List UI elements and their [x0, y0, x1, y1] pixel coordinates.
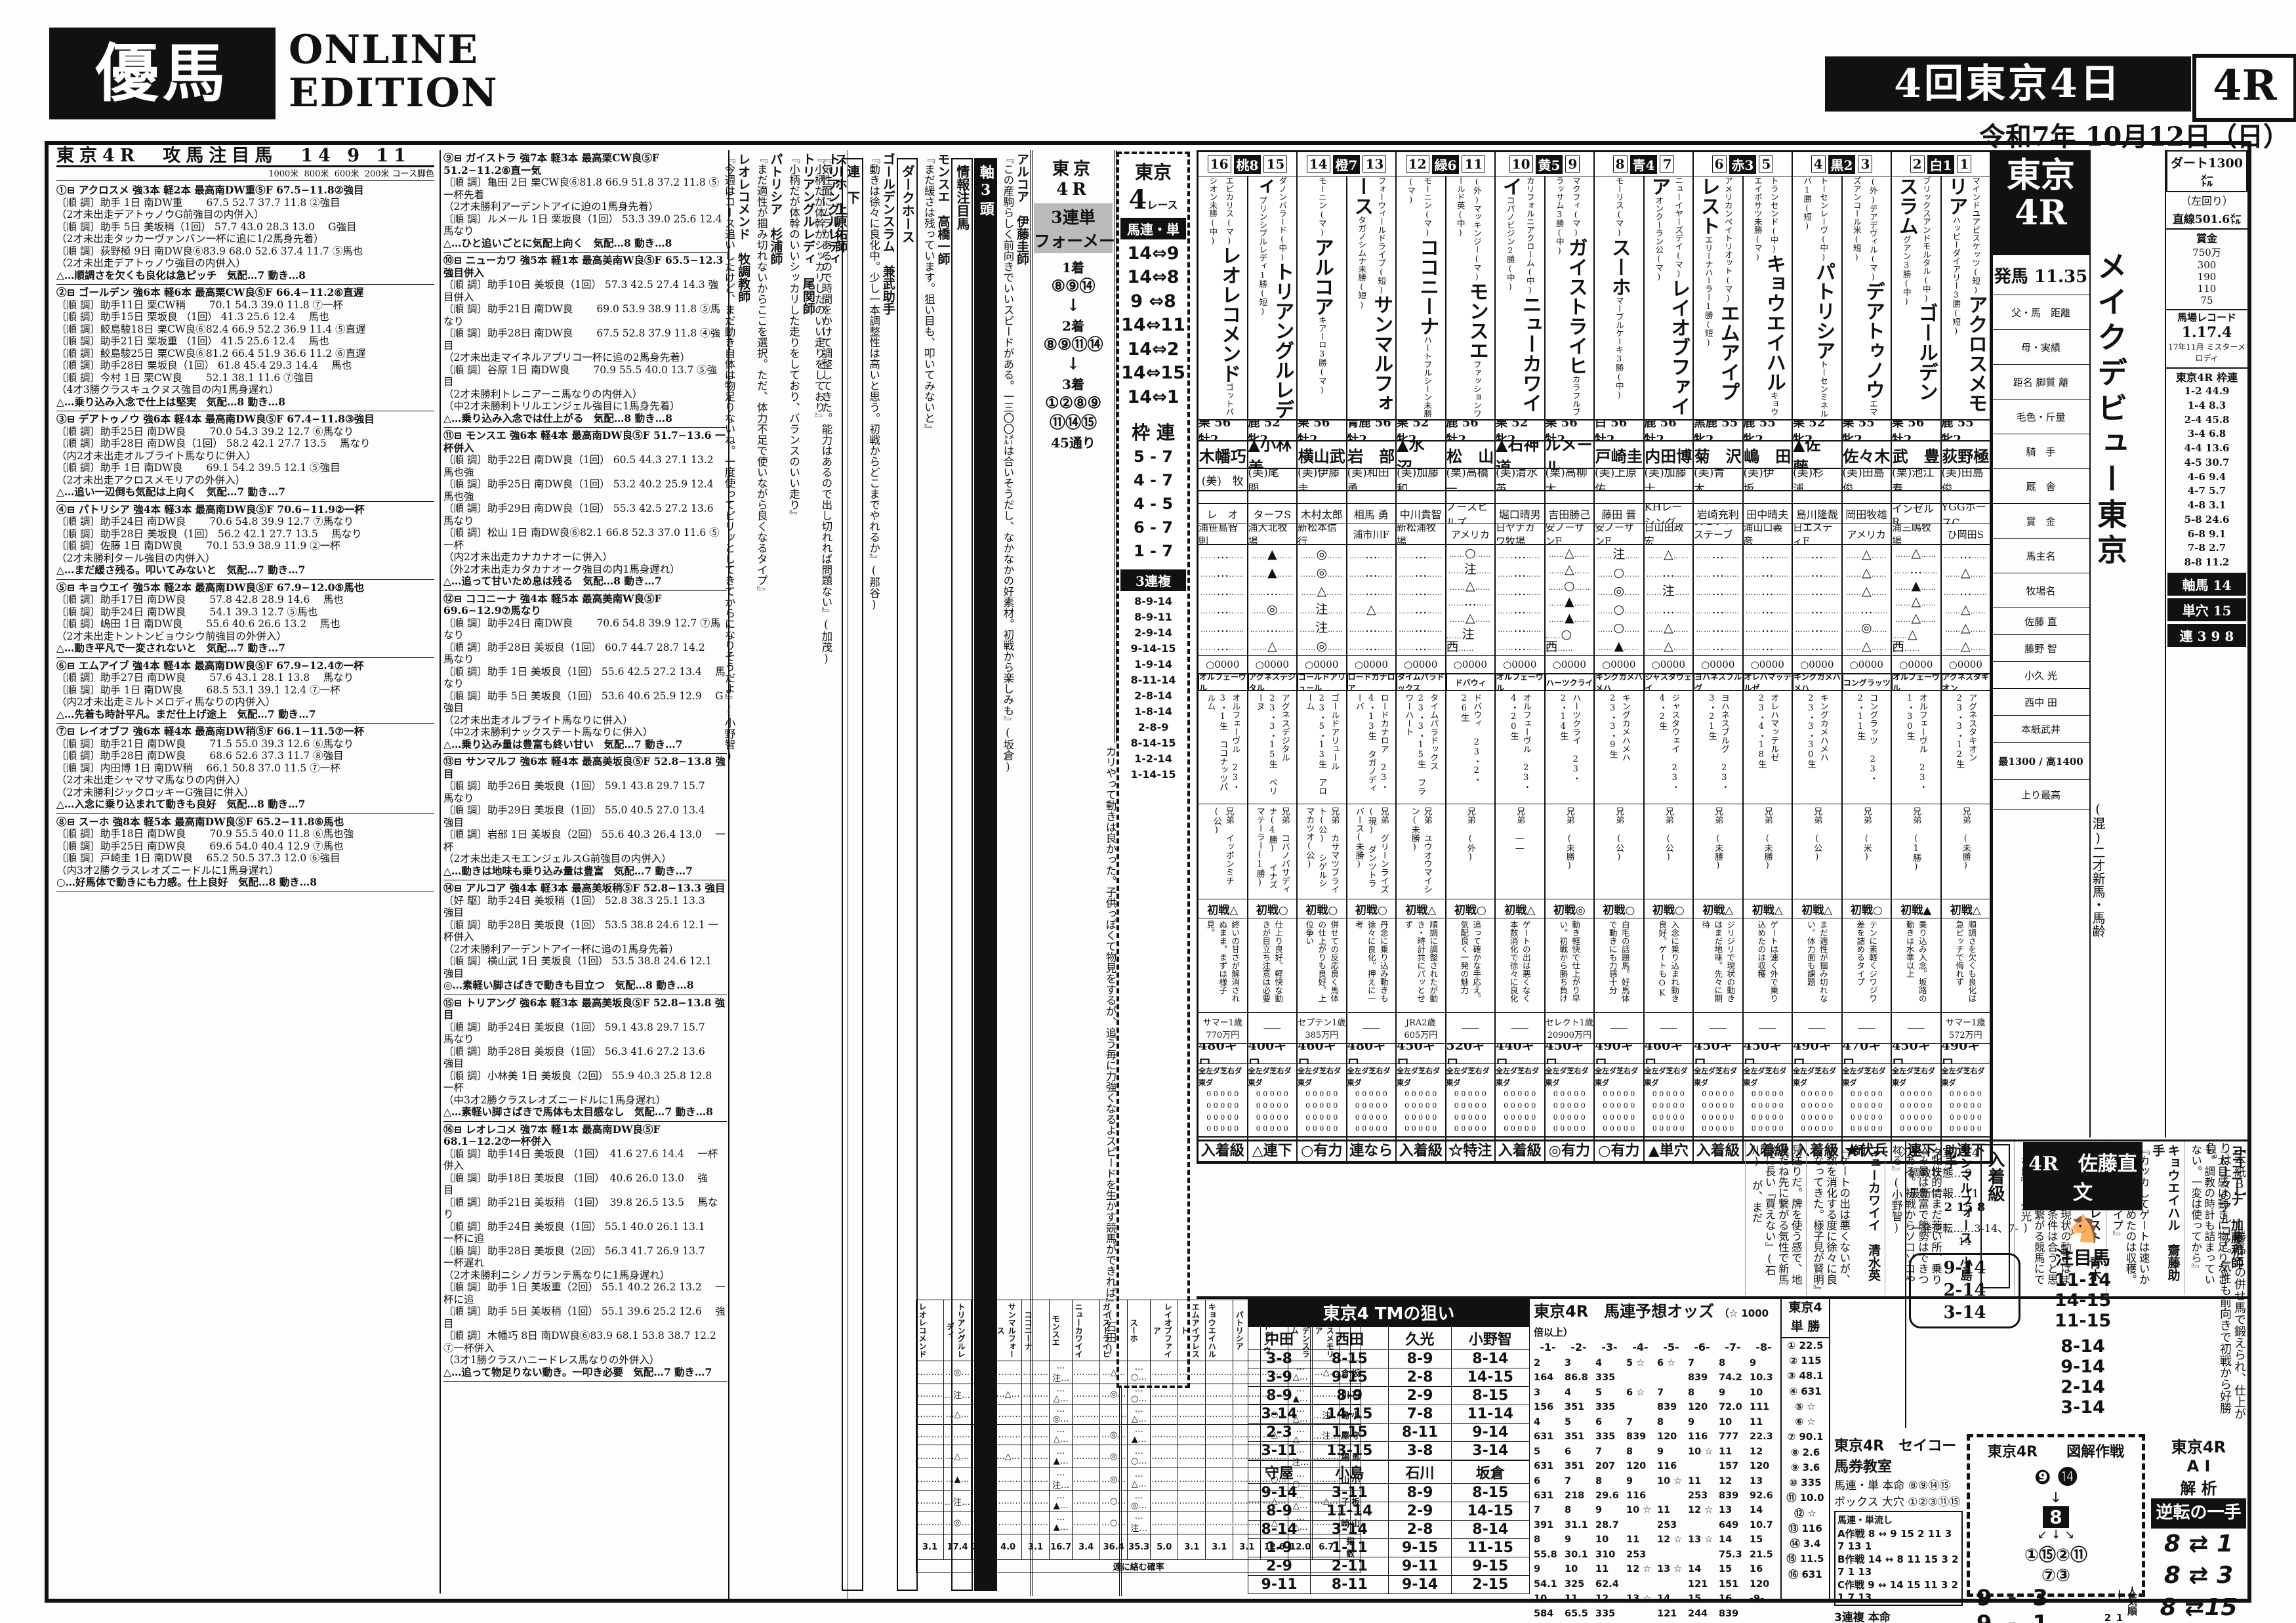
- frame-color-label: 白1: [1927, 155, 1955, 174]
- odds-cell: 6 631: [1534, 1474, 1562, 1504]
- frame-header: 10黄59: [1496, 152, 1595, 176]
- odds-col-header: -8-: [1750, 1340, 1778, 1356]
- mark-row: ……◎……: [1300, 640, 1343, 653]
- horse-name-cell: エピカリス(マ)レオレコメンドゴットパシオン未勝(中): [1199, 176, 1248, 421]
- tm-pick: 2-9: [1248, 1557, 1311, 1576]
- dots: ……: [1399, 625, 1414, 634]
- stable-name: (栗)高柳大: [1546, 469, 1595, 491]
- horse-name-cell: ニューイヤーズデイ(マ)レイオブファイアオンクーラン公(マ): [1645, 176, 1694, 421]
- odds-cell: 4 351: [1565, 1386, 1593, 1415]
- marks-horse-name-text: パトリシア: [1234, 1302, 1245, 1359]
- dots: ……: [1944, 588, 1959, 597]
- dam-name: キアーロ3勝(マ): [1317, 316, 1327, 395]
- mark: △: [1911, 546, 1921, 560]
- blank-cell: [1744, 491, 1794, 504]
- yuma-logo: 優馬: [49, 28, 276, 119]
- tm-header-row: 中田西田久光小野智: [1248, 1327, 1530, 1350]
- mark-row: ……△……: [1252, 640, 1293, 653]
- training-block-head: ⑤⊟ キョウエイ 強5本 軽2本 最高南DW良⑤F 67.9−12.0⑤馬也: [56, 582, 434, 594]
- mark-row: ……………: [1746, 548, 1790, 561]
- training-note: △…乗り込み入念では仕上がる 気配…8 動き…8: [443, 413, 727, 425]
- mark-row: ……△……: [1648, 640, 1689, 653]
- odds-cell: 10 325: [1565, 1562, 1593, 1592]
- training-block-head: ④⊟ パトリシア 強4本 軽3本 最高南DW良⑤F 70.6−11.9②一杯: [56, 504, 434, 516]
- mark-row: ……………: [1498, 640, 1542, 653]
- record-grid: 全左ダ芝右ダ東ダ0 0 0 0 00 0 0 0 00 0 0 0 00 0 0…: [1298, 1064, 1347, 1138]
- sibling-cell: 兄弟 ――: [1496, 804, 1546, 899]
- race-record: ○0000: [1595, 656, 1645, 674]
- dam-name: タガノシムナ未勝(短): [1357, 216, 1366, 310]
- dots: ……: [1575, 583, 1591, 592]
- dots: ……: [1477, 599, 1492, 607]
- dots: ……: [1574, 567, 1590, 575]
- marks-horse-name: キョウエイハル: [1206, 1300, 1233, 1361]
- horse-name: ココニーナ: [1416, 237, 1439, 336]
- tansho-odds-row: ⑤ ☆: [1782, 1399, 1829, 1414]
- nagashi-row: C作戦 9 ↔ 14 15 11 3 2 1 7 13: [1837, 1578, 1959, 1603]
- dam-name: ハッピーダイアリー3勝(短): [1951, 216, 1961, 336]
- training-block-head: ⑦⊟ レイオブフ 強6本 軽4本 最高南DW稍⑤F 66.1−11.5⑦一杯: [56, 726, 434, 738]
- damsire-name: オルフェーヴル: [1199, 674, 1248, 691]
- dots: ……: [1597, 607, 1613, 615]
- stable-comment-cell: 動き軽快で仕上がり早い。初戦から勝ち負け: [1546, 918, 1595, 1013]
- mark: ▲: [1614, 639, 1624, 653]
- sidebar-labels: 東京4R発馬 11.35父・馬 距離母・実績距名 脚質 離毛色・斤量騎 手厩 舎…: [1990, 150, 2091, 1138]
- mark-row: ……△……: [1648, 622, 1689, 634]
- dots: ……: [1795, 570, 1811, 579]
- record-grid-row: 0 0 0 0 0: [1801, 1088, 1833, 1100]
- index-value: 3.1: [916, 1534, 944, 1560]
- tm-pick: 9-14: [1389, 1576, 1451, 1594]
- dots: ……: [1895, 550, 1911, 559]
- index-value: 4.0: [994, 1534, 1022, 1560]
- comment-text: 『まだ適性が掴み切れないからここを選択。ただ、体力不足で使いながら良くなるタイプ…: [754, 153, 768, 1596]
- tm-pick-row: 3-1414-157-811-14: [1248, 1405, 1530, 1424]
- breeder-name: 浦三嶋牧場: [1892, 524, 1942, 545]
- band-segment: 見送りだ。牌を使う感で、地味だね先に繋がる気性で新馬戦に長い『買えない』(石川)…: [1745, 1141, 1807, 1295]
- training-line: （内2才未出走カナカナオーに併入）: [443, 551, 727, 564]
- mark-row: ……………: [1746, 622, 1790, 634]
- tansho-odds-row: ⑩ 335: [1782, 1475, 1829, 1490]
- dots: ……: [1378, 625, 1393, 634]
- training-line: 〔順 調〕助手 1日 美坂重（2回） 55.1 40.2 26.2 13.2 一…: [443, 1281, 727, 1305]
- breeder-name: 新松本信行: [1298, 524, 1347, 545]
- mark: …: [1513, 565, 1526, 580]
- mark: △: [1961, 565, 1971, 580]
- mark-row: ……………: [1250, 622, 1294, 634]
- mark-row: ……▲……: [1252, 548, 1293, 561]
- record-grid-head: 全左ダ芝右ダ東ダ: [1347, 1065, 1396, 1088]
- row-label: 賞 金: [1992, 504, 2089, 539]
- prize-row: 300: [2166, 259, 2247, 271]
- first-race-mark: 初戦○: [1298, 899, 1347, 918]
- training-line: （2才未勝利ジックロッキーG強目に併入）: [56, 787, 434, 799]
- horse-name: アルコア: [1311, 237, 1334, 316]
- dots: ……: [1349, 570, 1365, 579]
- place-1-horses: ⑧⑨⑭: [1033, 276, 1114, 296]
- marks-horse-name: ガイストライヒ: [1100, 1300, 1128, 1361]
- mark-cell: ………: [994, 1361, 1022, 1384]
- wakuren-odds-row: 7-8 2.7: [2166, 541, 2247, 556]
- odds-cell: 12 ☆: [1657, 1532, 1685, 1562]
- training-line: 〔順 調〕小林美 1日 美坂良（2回） 55.9 40.3 25.8 12.8 …: [443, 1070, 727, 1094]
- mark-cell: ………: [1178, 1491, 1206, 1511]
- jockey-name: 木幡巧: [1199, 442, 1248, 469]
- odds-cell: 7 207: [1595, 1445, 1624, 1474]
- sibling-cell: 兄弟 (公): [1645, 804, 1694, 899]
- dots: ……: [1944, 552, 1959, 560]
- owner-name: 島川隆哉: [1793, 504, 1843, 524]
- mark-row: ……◎……: [1300, 548, 1343, 561]
- training-block: ③⊟ デアトゥノウ 強6本 軽4本 最高南DW良⑤F 67.4−11.8③強目〔…: [56, 411, 434, 502]
- damsire-name: アグネスデジタル: [1248, 674, 1298, 691]
- dots: ……: [1696, 607, 1712, 615]
- dots: ……: [1229, 607, 1244, 615]
- frame-header: 16桃815: [1199, 152, 1298, 176]
- mark-cell: …◎…: [1100, 1384, 1128, 1405]
- dots: ……: [1648, 552, 1664, 560]
- first-race-mark: 初戦△: [1694, 899, 1744, 918]
- dots: ……: [1477, 567, 1492, 575]
- tm-title: 東京4 TMの狙い: [1248, 1298, 1530, 1326]
- prize-cell: ――: [1595, 1013, 1645, 1044]
- dots: ……: [1278, 607, 1294, 615]
- dots: ……: [1971, 607, 1986, 615]
- logo-edition: EDITION: [289, 72, 499, 114]
- mark-row: ……△……: [1450, 580, 1491, 592]
- mark-row: ……………: [1795, 640, 1839, 653]
- dots: ……: [1647, 607, 1662, 615]
- wakuren-odds-row: 4-4 13.6: [2166, 442, 2247, 456]
- prize-cell: ――: [1496, 1013, 1546, 1044]
- mark: …: [1761, 584, 1774, 598]
- jockey-name: 内田博: [1645, 442, 1694, 469]
- dots: ……: [1399, 588, 1414, 597]
- body-weight: 440キロ: [1496, 1044, 1546, 1064]
- owner-name: 吉田勝己: [1546, 504, 1595, 524]
- breeder-name: 新松浦牧場: [1397, 524, 1446, 545]
- mark: ○: [1613, 565, 1624, 580]
- race-id-box: 東京4R: [1992, 150, 2089, 255]
- mark: …: [1365, 565, 1378, 580]
- dots: ……: [1351, 607, 1366, 615]
- stable-comment-cell: 入念に乗り込まれ動き良好。ゲートもOK: [1645, 918, 1694, 1013]
- pedigree-cell: ゴールドアリュール 23・5・13生 アローム: [1298, 691, 1347, 804]
- comment-segment: ゴールデンスラム 兼武助手『動きは徐々に良化中。少し一本調整性は高いと思う。初戦…: [867, 153, 895, 1596]
- dots: ……: [1945, 625, 1961, 634]
- mark-cell: ………: [944, 1425, 972, 1445]
- mark: …: [1959, 547, 1972, 562]
- mark-cell: …▲…: [972, 1361, 994, 1384]
- mark-cell: ………: [1151, 1445, 1178, 1468]
- blank-cell: [1546, 491, 1595, 504]
- marks-horse-name-text: サンマルフォース: [995, 1302, 1017, 1359]
- dots: ……: [1300, 625, 1315, 634]
- tm-pick-row: 9-143-118-98-15: [1248, 1484, 1530, 1502]
- arrow-down-icon: ↓: [1033, 354, 1114, 374]
- dots: ……: [1795, 625, 1811, 634]
- record-grid: 全左ダ芝右ダ東ダ0 0 0 0 00 0 0 0 00 0 0 0 00 0 0…: [1546, 1064, 1595, 1138]
- dots: ……: [1229, 570, 1244, 579]
- stable-comment-cell: 順調に調整されたが動き・時計共にパッとせず: [1397, 918, 1446, 1013]
- comment-text: 『動きは徐々に良化中。少し一本調整性は高いと思う。初戦からどこまでやれるか』(那…: [867, 153, 880, 1596]
- mark-row: ……△……: [1549, 564, 1590, 576]
- dots: ……: [1624, 588, 1640, 597]
- tm-marks-cell: ………………………………………………………………………………: [1793, 545, 1843, 656]
- frame-header: 4黒23: [1793, 152, 1892, 176]
- record-grid-row: 0 0 0 0 0: [1305, 1112, 1338, 1124]
- pedigree-text: アグネスデジタル 23・3・15生 ペリーヌ: [1254, 693, 1291, 798]
- mark-cell: ………: [1178, 1384, 1206, 1405]
- horse-name-wrap: カリフォルニアクローム(中)ニューカワイイコパノビジン2勝(中): [1500, 176, 1540, 419]
- stable-comment-cell: 順調さを欠くも良化は急ピッチで侮れず: [1942, 918, 1992, 1013]
- horse-name-cell: トランセンド(中)キョウエイハルキョウエイボサツ未勝(マ): [1744, 176, 1794, 421]
- mark: ○: [1564, 579, 1575, 593]
- sibling-text: 兄弟 (米): [1860, 807, 1873, 894]
- frame-color-label: 青4: [1630, 155, 1658, 174]
- odds-cell: 9 116: [1657, 1445, 1685, 1474]
- dots: ……: [1774, 625, 1790, 634]
- mark: …: [1712, 547, 1724, 562]
- tm-pick: 9-11: [1389, 1557, 1451, 1576]
- record-grid-row: 0 0 0 0 0: [1603, 1112, 1635, 1124]
- record-grid: 全左ダ芝右ダ東ダ0 0 0 0 00 0 0 0 00 0 0 0 00 0 0…: [1942, 1064, 1992, 1138]
- training-line: 〔順 調〕助手28日 美坂良（1回） 53.5 38.8 24.6 12.1 一…: [443, 919, 727, 943]
- record-grid-row: 0 0 0 0 0: [1900, 1123, 1932, 1135]
- wakuren-odds-row: 4-8 3.1: [2166, 499, 2247, 513]
- training-block-head: ③⊟ デアトゥノウ 強6本 軽4本 最高南DW良⑤F 67.4−11.8③強目: [56, 413, 434, 426]
- index-value: 36.4: [1100, 1534, 1128, 1560]
- prize-row: 190: [2166, 271, 2247, 283]
- damsire-name: オルフェーヴル: [1892, 674, 1942, 691]
- race-condition: (混)二才新馬・馬齢: [2089, 659, 2108, 1079]
- mark-row: ……………: [1498, 585, 1542, 598]
- stable-name: (美) 牧: [1199, 469, 1248, 491]
- dots: ……: [1624, 644, 1639, 652]
- record-header: 馬場レコード: [2166, 309, 2247, 324]
- damsire-name: ドバウィ: [1446, 674, 1496, 691]
- ai-title1: 東京4R: [2151, 1434, 2246, 1457]
- blank-cell: [1645, 491, 1694, 504]
- dots: ……: [1846, 588, 1862, 597]
- tm-pick: 11-15: [1451, 1539, 1529, 1557]
- prize-header: 賞金: [2166, 230, 2247, 245]
- pedigree-text: オルフェーヴル 23・3・1生 ココナッツパルム: [1204, 693, 1241, 798]
- mark-cell: ………: [1073, 1445, 1100, 1468]
- mark-cell: ………: [1151, 1468, 1178, 1491]
- pedigree-text: オルフェーヴル 23・4・20生: [1507, 693, 1532, 798]
- dots: ……: [1675, 588, 1691, 597]
- chumoku-label: 注目馬: [2020, 1244, 2145, 1270]
- coat-weight-sex: 栗 55 牝2: [1843, 421, 1893, 442]
- mark-cell: ………: [1022, 1468, 1050, 1491]
- odds-cell: 10 777: [1719, 1415, 1747, 1445]
- mark-cell: …▲…: [1050, 1445, 1073, 1468]
- mark-row: ……………: [1696, 640, 1740, 653]
- logo-online: ONLINE: [289, 29, 479, 71]
- horse-name: レオレコメンド: [1218, 245, 1240, 383]
- mark-cell: ………: [1151, 1384, 1178, 1405]
- umaren-odds-matrix: 東京4R 馬連予想オッズ （☆ 1000倍以上）-1--2--3--4--5--…: [1534, 1298, 1778, 1599]
- tm-marks-cell: ……△…………△…………○…………▲…………▲…………○西……: [1546, 545, 1595, 656]
- training-line: 〔順 調〕助手28日 美坂良（2回） 56.3 41.7 26.9 13.7 一…: [443, 1245, 727, 1269]
- training-line: （2才未出走マイネルアプリコ一杯に追の2馬身先着）: [443, 352, 727, 364]
- dots: ……: [1598, 644, 1614, 652]
- mark-row: ……○……: [1597, 567, 1640, 579]
- stable-name: (美)清水英: [1496, 469, 1546, 491]
- index-value: 3.1: [1206, 1534, 1233, 1560]
- record-grid-head: 全左ダ芝右ダ東ダ: [1248, 1065, 1297, 1088]
- training-line: 〔順 調〕助手 5日 美坂稍（1回） 55.1 39.6 25.2 12.6 強…: [443, 1305, 727, 1330]
- race-record: ○0000: [1347, 656, 1397, 674]
- pedigree-text: ヨハネスブルグ 23・3・21生: [1706, 693, 1731, 798]
- mark: …: [1712, 621, 1724, 635]
- ai-analysis-block: 東京4RA I解 析逆転の一手8 ⇄ 18 ⇄ 38 ⇄158 ⇄118 ⇄ 2…: [2151, 1434, 2246, 1597]
- dots: ……: [1696, 644, 1712, 652]
- training-line: 〔順 調〕助手28日 美坂良（1回） 56.3 41.6 27.2 13.6 強…: [443, 1046, 727, 1070]
- index-value: 16.7: [1050, 1534, 1073, 1560]
- place-2-horses: ⑧⑨⑪⑭: [1033, 335, 1114, 354]
- coat-weight-sex: 栗 56 牡2: [1892, 421, 1942, 442]
- record-grid-row: 0 0 0 0 0: [1603, 1123, 1635, 1135]
- tm-pick-row: 2-31-158-119-14: [1248, 1424, 1530, 1442]
- owner-name: インゼルR: [1892, 504, 1942, 524]
- horse-no-left: 14: [1307, 155, 1330, 173]
- tm-pick: 9-15: [1451, 1557, 1529, 1576]
- training-line: （内3才2勝クラスレオズニードルに1馬身遅れ）: [56, 865, 434, 877]
- horse-name-cell: マクフィ(マ)ガイストライヒカラフルブラッサム3勝(中): [1546, 176, 1595, 421]
- mark: ○: [1613, 602, 1624, 617]
- mark-row: ……………: [1696, 567, 1740, 579]
- odds-col-header: -7-: [1719, 1340, 1747, 1356]
- mark-row: ……………: [1894, 564, 1938, 576]
- mark-cell: ………: [1206, 1445, 1233, 1468]
- mark-cell: ………: [1206, 1425, 1233, 1445]
- record-grid-head: 全左ダ芝右ダ東ダ: [1892, 1065, 1940, 1088]
- mark-cell: …◎…: [1128, 1491, 1151, 1511]
- training-line: （中3才2勝クラスレオズニードルに1馬身遅れ）: [443, 1094, 727, 1107]
- body-weight: 450キロ: [1694, 1044, 1744, 1064]
- blank-cell: [1298, 491, 1347, 504]
- wakuren-odds-row: 4-5 30.7: [2166, 456, 2247, 470]
- owner-name: 木村太郎: [1298, 504, 1347, 524]
- training-line: （3才1勝クラスハニードレス馬なりの外併入）: [443, 1354, 727, 1366]
- dots: ……: [1300, 570, 1316, 579]
- mark: 注: [1315, 621, 1328, 635]
- mark: …: [1959, 584, 1972, 598]
- mark-cell: ………: [1151, 1425, 1178, 1445]
- stable-name: (美)尾 関: [1248, 469, 1298, 491]
- stable-comment: 仕上り良好。軽快な動きが目立ち注意は必要: [1260, 920, 1284, 1007]
- pedigree-cell: オレハマッテルゼ 23・4・18生: [1744, 691, 1794, 804]
- owner-name: KHレーシング: [1645, 504, 1694, 524]
- race-record: ○0000: [1496, 656, 1546, 674]
- wakuren-odds-row: 1-2 44.9: [2166, 384, 2247, 399]
- tm-pick-row: 2-92-119-119-15: [1248, 1557, 1530, 1576]
- prize-row: 750万: [2166, 245, 2247, 259]
- ai-pair: 8 ⇄15: [2151, 1592, 2246, 1623]
- zukai-pairs-wrap: 9 - 39 - 19 -159 - 29 -119 - 79 - 8人気順 8…: [1973, 1586, 2139, 1623]
- mark-cell: ………: [1206, 1491, 1233, 1511]
- sibling-cell: 兄弟 (公): [1793, 804, 1843, 899]
- coat-weight-sex: 栗 52 牝2: [1397, 421, 1446, 442]
- mark-cell: ………: [1151, 1511, 1178, 1534]
- index-value: 5.0: [1151, 1534, 1178, 1560]
- first-race-mark: 初戦○: [1347, 899, 1397, 918]
- horse-name-wrap: モーリス(マ)スーホマーブルケーキ3勝(中): [1609, 176, 1629, 419]
- sire-name: アメリカンペイトリオット(マ): [1723, 176, 1733, 303]
- training-line: （2才未勝利トレニアーニ馬なりの内併入）: [443, 388, 727, 401]
- pedigree-cell: ハーツクライ 23・2・14生: [1546, 691, 1595, 804]
- sanrenpuku-header: 3連複: [1120, 569, 1186, 591]
- rounded-picks-box: 9-142-143-14: [1909, 1253, 2020, 1328]
- record-grid-row: 0 0 0 0 0: [1801, 1100, 1833, 1112]
- jockey-name: 岩 部: [1347, 442, 1397, 469]
- dots: ……: [1872, 552, 1887, 560]
- breeder-name: 安ゼットステーブル: [1694, 524, 1744, 545]
- seiko-baken-block: 東京4R セイコー馬券教室馬連・単 本命 ⑧⑨⑭⑮ボックス 大穴 ①②③⑪⑮馬連…: [1834, 1434, 1963, 1598]
- training-line: 〔順 調〕助手28日 南DW良（1回） 58.2 42.1 27.7 13.5 …: [56, 438, 434, 450]
- tm-pick: 1-11: [1311, 1539, 1389, 1557]
- record-grid-row: 0 0 0 0 0: [1752, 1088, 1784, 1100]
- training-line: 〔順 調〕今村 1日 栗CW良 52.1 38.1 11.6 ⑦強目: [56, 372, 434, 384]
- marks-horse-name-text: ココニーナ: [1023, 1302, 1034, 1359]
- owner-name: ノースヒルズ: [1446, 504, 1496, 524]
- stable-comment-cell: 終いの甘さが解消されぬまま。まずは様子見。: [1199, 918, 1248, 1013]
- odds-cell: 10 ☆: [1657, 1474, 1685, 1504]
- mark: △: [1961, 639, 1971, 653]
- training-line: 〔順 調〕助手28日 美坂良（1回） 56.2 42.1 27.7 13.5 馬…: [56, 528, 434, 541]
- stable-name: (美)伊 坂: [1744, 469, 1794, 491]
- wakuren-odds-row: 6-8 9.1: [2166, 527, 2247, 542]
- arrow-down-icon: ↓: [1033, 296, 1114, 316]
- sibling-text: 兄弟 (未勝): [1761, 807, 1774, 894]
- mark-row: ……………: [1399, 567, 1443, 579]
- record-grid: 全左ダ芝右ダ東ダ0 0 0 0 00 0 0 0 00 0 0 0 00 0 0…: [1843, 1064, 1893, 1138]
- tm-pick: 14-15: [1311, 1405, 1389, 1424]
- wakuren-odds-row: 3-4 6.8: [2166, 427, 2247, 442]
- coat-weight-sex: 栗 52 牝2: [1496, 421, 1546, 442]
- training-line: 〔順 調〕助手24日 南DW良 70.6 54.8 39.9 12.7 ⑦馬なり: [56, 516, 434, 528]
- stable-comment: まだ適性が掴み切れない。体力面も課題: [1805, 920, 1830, 1007]
- mark: ◎: [1316, 547, 1327, 562]
- training-note: △…入念に乗り込まれて動きも良好 気配…8 動き…7: [56, 798, 434, 811]
- pedigree-text: ロードカナロア 23・4・13生 タガノディーバ: [1353, 693, 1390, 798]
- mark-row: ……………: [1250, 585, 1294, 598]
- sanrenpuku-combo: 1-8-14: [1120, 704, 1186, 720]
- dots: ……: [1895, 615, 1911, 624]
- dots: ……: [1427, 588, 1443, 597]
- mark-cell: …△…: [944, 1405, 972, 1425]
- dots: ……: [1427, 607, 1443, 615]
- tm-pick: 3-11: [1248, 1442, 1311, 1460]
- record-grid-row: 0 0 0 0 0: [1404, 1088, 1437, 1100]
- tm-pick: 13-15: [1311, 1442, 1389, 1460]
- record-grid-row: 0 0 0 0 0: [1256, 1088, 1288, 1100]
- dots: ……: [1526, 588, 1542, 597]
- rounded-pick: 2-14: [1916, 1280, 2013, 1302]
- record-grid-row: 0 0 0 0 0: [1305, 1088, 1338, 1100]
- sibling-text: 兄弟 (公): [1612, 807, 1625, 894]
- mark-row: ……………: [1200, 622, 1244, 634]
- tm-person-name: 西田: [1311, 1327, 1389, 1350]
- odds-col-header: -2-: [1565, 1340, 1593, 1356]
- newspaper-page: 優馬 ONLINE EDITION 4回東京4日 4R 令和7年 10月12日（…: [0, 0, 2296, 1623]
- dots: ……: [1498, 625, 1513, 634]
- mark-row: ……………: [1696, 604, 1740, 616]
- tm-person-name: 守屋: [1248, 1461, 1311, 1484]
- sibling-cell: 兄弟 (未勝): [1942, 804, 1992, 899]
